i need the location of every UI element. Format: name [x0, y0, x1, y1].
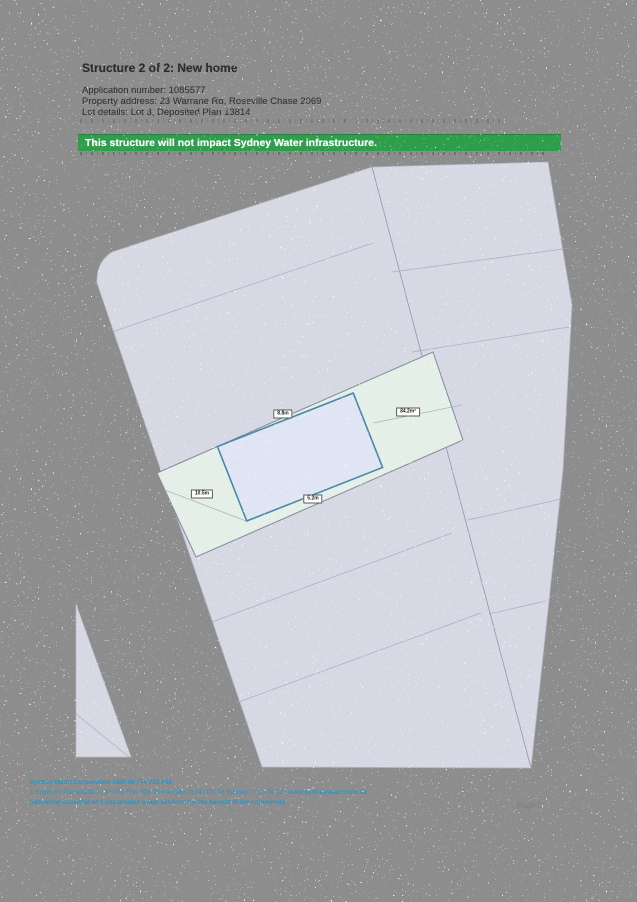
- footer-tagline: Delivering essential and sustainable wat…: [30, 798, 367, 808]
- footer-website-url: www.sydneywater.com.au: [288, 789, 367, 796]
- scanned-document: { "document": { "title": "Structure 2 of…: [0, 0, 637, 902]
- property-address-label: Property address:: [82, 96, 157, 107]
- page-number: Page 5: [517, 801, 542, 810]
- lot-details-label: Lot details:: [82, 107, 128, 118]
- footer: Sydney Water Corporation ABN 49 776 225 …: [30, 778, 367, 808]
- scan-noise-band: [80, 152, 548, 155]
- dimension-label-bottom-width: 5.2m: [303, 495, 322, 504]
- adjacent-parcel-sliver: [76, 604, 131, 757]
- application-number-value: 1085577: [169, 85, 206, 96]
- dimension-label-top-width: 8.8m: [273, 410, 292, 419]
- scan-noise-band: [80, 119, 500, 123]
- dimension-label-area: 84.2m²: [396, 408, 420, 417]
- footer-corporation-line: Sydney Water Corporation ABN 49 776 225 …: [30, 778, 367, 788]
- page-title: Structure 2 of 2: New home: [82, 61, 237, 75]
- footer-contact-line: 1 Smith St, Parramatta 2150 | PO Box 399…: [30, 788, 367, 798]
- footer-contact-text: 1 Smith St, Parramatta 2150 | PO Box 399…: [30, 789, 288, 796]
- impact-result-banner: This structure will not impact Sydney Wa…: [78, 134, 561, 151]
- lot-details-value: Lot 3, Deposited Plan 13814: [131, 107, 251, 118]
- property-details: Application number: 1085577 Property add…: [82, 86, 321, 118]
- document-page: 8.8m 84.2m² 10.5m 5.2m Structure 2 of 2:…: [0, 0, 637, 902]
- lot-details-line: Lot details: Lot 3, Deposited Plan 13814: [82, 108, 321, 119]
- dimension-label-left-setback: 10.5m: [191, 490, 213, 499]
- property-address-value: 23 Warrane Rd, Roseville Chase 2069: [160, 96, 322, 107]
- application-number-label: Application number:: [82, 85, 166, 96]
